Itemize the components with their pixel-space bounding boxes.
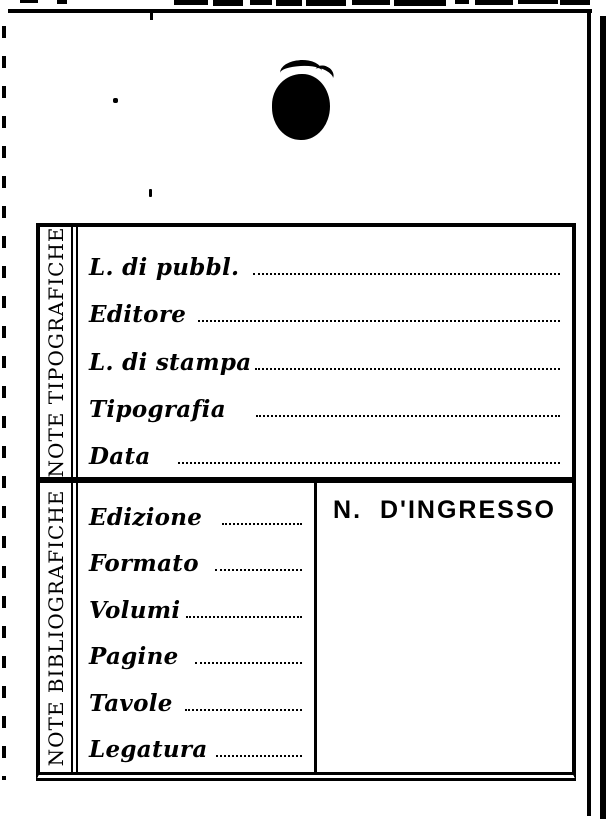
scan-artifact-fragment xyxy=(560,0,590,5)
field-row: L. di stampa xyxy=(89,333,560,380)
field-label-editore: Editore xyxy=(89,303,186,326)
field-row: L. di pubbl. xyxy=(89,239,560,286)
scan-artifact-fragment xyxy=(394,0,446,6)
scan-edge-right xyxy=(600,16,606,819)
ink-speck xyxy=(149,189,152,197)
field-writein-l-di-stampa[interactable] xyxy=(255,354,560,370)
scan-artifact-fragment xyxy=(174,0,208,5)
scan-artifact-fragment xyxy=(20,0,38,3)
field-label-legatura: Legatura xyxy=(89,738,208,761)
section-label-tipografiche: NOTE TIPOGRAFICHE xyxy=(44,227,68,478)
field-label-data: Data xyxy=(89,445,151,468)
field-row: Data xyxy=(89,428,560,475)
scan-artifact-fragment xyxy=(475,0,513,5)
field-writein-tipografia[interactable] xyxy=(256,401,560,417)
scan-artifact-fragment xyxy=(57,0,67,4)
side-label-column-bibliografiche: NOTE BIBLIOGRAFICHE xyxy=(40,483,78,772)
field-writein-legatura[interactable] xyxy=(216,741,302,757)
field-row: Tavole xyxy=(89,675,302,722)
field-writein-pagine[interactable] xyxy=(195,648,302,664)
field-row: Legatura xyxy=(89,722,302,769)
page-border-right xyxy=(587,10,591,816)
page-border-top xyxy=(8,9,592,13)
side-label-column-tipografiche: NOTE TIPOGRAFICHE xyxy=(40,227,78,477)
scan-artifact-fragment xyxy=(455,0,469,4)
catalog-form-table: NOTE TIPOGRAFICHE L. di pubbl. Editore L… xyxy=(36,223,576,781)
field-row: Editore xyxy=(89,286,560,333)
scan-artifact-top-strip xyxy=(0,0,606,8)
field-row: Edizione xyxy=(89,489,302,536)
field-row: Tipografia xyxy=(89,381,560,428)
field-row: Formato xyxy=(89,536,302,583)
field-label-edizione: Edizione xyxy=(89,506,202,529)
field-writein-tavole[interactable] xyxy=(185,695,302,711)
scan-artifact-fragment xyxy=(352,0,390,5)
scan-artifact-fragment xyxy=(250,0,272,5)
field-label-l-di-pubbl: L. di pubbl. xyxy=(89,256,239,279)
field-writein-volumi[interactable] xyxy=(186,602,302,618)
scan-artifact-fragment xyxy=(213,0,243,6)
bibliografiche-fields: Edizione Formato Volumi Pagine Tavole xyxy=(78,483,317,772)
ingresso-cell: N. D'INGRESSO xyxy=(317,483,572,772)
field-writein-formato[interactable] xyxy=(215,555,302,571)
ingresso-number-heading: N. D'INGRESSO xyxy=(333,496,556,525)
page-border-left xyxy=(2,26,6,780)
scan-artifact-fragment xyxy=(306,0,346,6)
field-row: Volumi xyxy=(89,582,302,629)
section-note-bibliografiche: NOTE BIBLIOGRAFICHE Edizione Formato Vol… xyxy=(40,483,572,772)
field-writein-data[interactable] xyxy=(178,448,560,464)
field-writein-l-di-pubbl[interactable] xyxy=(253,259,560,275)
section-label-bibliografiche: NOTE BIBLIOGRAFICHE xyxy=(44,489,68,766)
field-label-l-di-stampa: L. di stampa xyxy=(89,351,251,374)
field-label-volumi: Volumi xyxy=(89,599,180,622)
field-row: Pagine xyxy=(89,629,302,676)
section-note-tipografiche: NOTE TIPOGRAFICHE L. di pubbl. Editore L… xyxy=(40,227,572,477)
field-label-tipografia: Tipografia xyxy=(89,398,226,421)
field-writein-editore[interactable] xyxy=(198,306,560,322)
ingresso-number-writein-area[interactable] xyxy=(317,525,572,772)
field-label-tavole: Tavole xyxy=(89,692,173,715)
catalog-card-scan: NOTE TIPOGRAFICHE L. di pubbl. Editore L… xyxy=(0,0,606,819)
field-label-formato: Formato xyxy=(89,552,199,575)
scan-artifact-fragment xyxy=(518,0,558,4)
ink-speck xyxy=(113,98,118,103)
field-label-pagine: Pagine xyxy=(89,645,179,668)
ink-speck xyxy=(150,13,153,20)
field-writein-edizione[interactable] xyxy=(222,509,302,525)
scan-artifact-fragment xyxy=(276,0,302,6)
tipografiche-fields: L. di pubbl. Editore L. di stampa Tipogr… xyxy=(78,227,572,477)
